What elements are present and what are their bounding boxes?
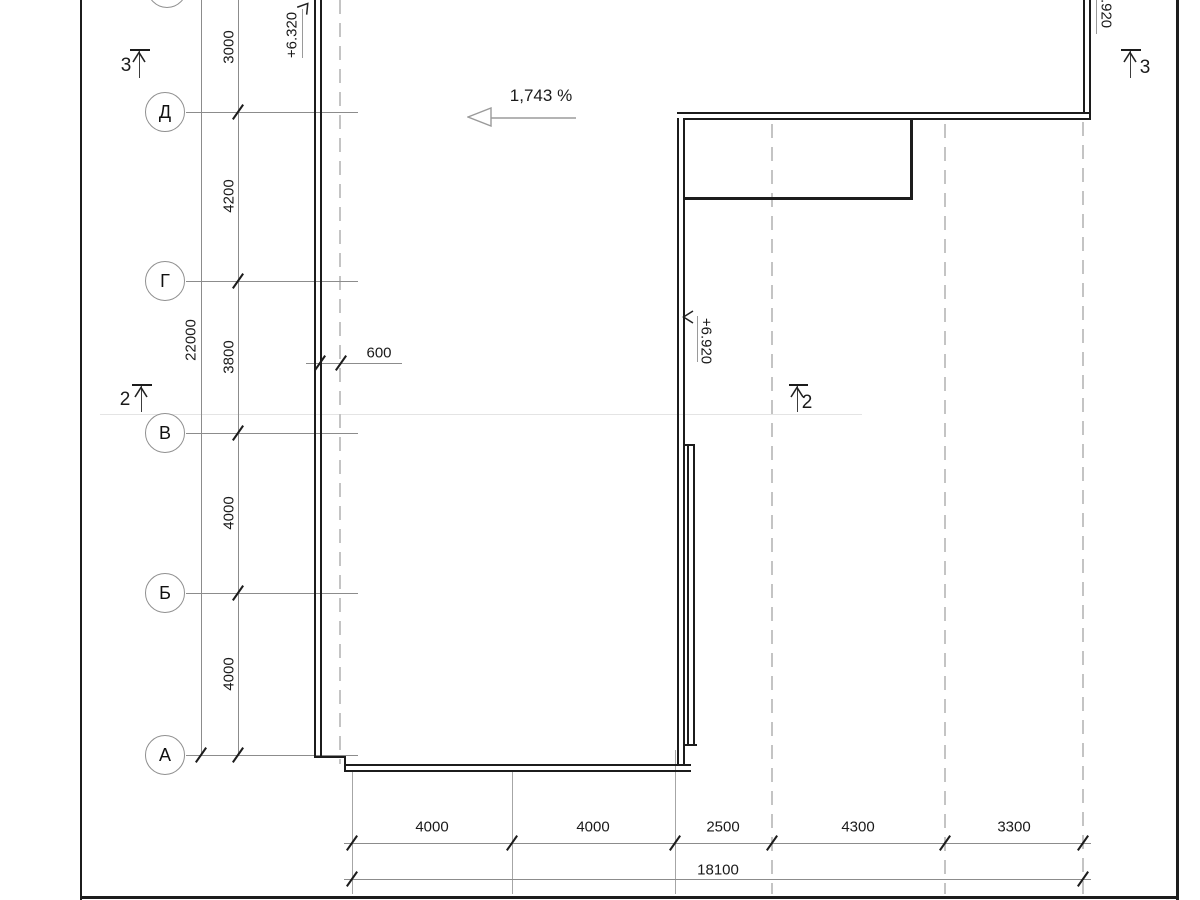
building-wall-upper-right-inner <box>1089 0 1091 120</box>
dim-text-4300: 4300 <box>841 819 874 836</box>
axis-circle-g: Г <box>145 261 185 301</box>
axis-label: Д <box>159 102 171 123</box>
slope-arrowhead-icon <box>467 107 493 127</box>
building-wall-upper-right-outer <box>1083 0 1085 114</box>
dim-text-3300: 3300 <box>997 819 1030 836</box>
roof-strip-top <box>683 444 695 446</box>
frame-bottom-border <box>80 896 1179 899</box>
dim-text-4000: 4000 <box>576 819 609 836</box>
section-label-2: 2 <box>120 389 131 411</box>
section-arrowhead-icon <box>131 51 147 63</box>
building-bottom-step-edge <box>314 756 346 758</box>
roof-strip-right <box>693 444 695 744</box>
dim-text-4000: 4000 <box>415 819 448 836</box>
dim-line-left-total <box>201 0 202 756</box>
axis-circle-top-cut <box>147 0 187 8</box>
axis-line-v <box>186 433 358 434</box>
axis-label: Г <box>160 271 170 292</box>
roof-strip-left <box>687 444 689 744</box>
axis-circle-d: Д <box>145 92 185 132</box>
axis-line-d <box>186 112 358 113</box>
section-label-3: 3 <box>121 55 132 77</box>
section-arrowhead-icon <box>1122 51 1138 63</box>
axis-label: Б <box>159 583 171 604</box>
building-wall-left-inner <box>320 0 322 758</box>
frame-right-border <box>1176 0 1179 900</box>
building-wall-right-inner <box>683 118 685 766</box>
dim-text-22000: 22000 <box>183 319 200 361</box>
dashed-grid-line <box>339 0 341 764</box>
dashed-grid-line <box>944 124 946 894</box>
axis-circle-v: В <box>145 413 185 453</box>
building-bottom-step <box>344 756 346 770</box>
dim-text-2500: 2500 <box>706 819 739 836</box>
axis-circle-a: А <box>145 735 185 775</box>
section-label-3: 3 <box>1140 57 1151 79</box>
dashed-grid-line <box>1082 122 1084 894</box>
dim-text-3800: 3800 <box>221 340 238 373</box>
elevation-label: +6.920 <box>698 318 715 364</box>
dim-text-18100: 18100 <box>697 862 739 879</box>
elevation-leader <box>302 9 303 58</box>
dim-text-4200: 4200 <box>221 179 238 212</box>
elevation-arrowhead-icon <box>682 309 694 325</box>
dashed-grid-line <box>771 124 773 894</box>
extension-line <box>512 772 513 894</box>
axis-label: В <box>159 423 171 444</box>
dim-text-3000: 3000 <box>221 30 238 63</box>
dim-line-bottom-segments <box>344 843 1091 844</box>
dim-line-bottom-total <box>344 879 1091 880</box>
frame-left-border <box>80 0 82 900</box>
section-label-2: 2 <box>802 392 813 414</box>
axis-label: А <box>159 745 171 766</box>
building-wall-right-outer <box>677 118 679 766</box>
dim-text-600: 600 <box>366 345 391 362</box>
building-bottom-outer <box>344 764 691 766</box>
slope-label: 1,743 % <box>510 86 572 106</box>
roof-edge-top-inner <box>683 118 1090 120</box>
dim-text-4000: 4000 <box>221 496 238 529</box>
axis-line-b <box>186 593 358 594</box>
parapet-rect-right <box>910 118 913 200</box>
axis-line-g <box>186 281 358 282</box>
parapet-rect-bottom <box>683 197 913 200</box>
elevation-label: +6.920 <box>1098 0 1115 28</box>
axis-circle-b: Б <box>145 573 185 613</box>
building-bottom-inner <box>344 770 691 772</box>
slope-arrow-line <box>491 117 576 119</box>
building-wall-left-outer <box>314 0 316 758</box>
roof-edge-top-outer <box>677 112 1090 114</box>
elevation-label: +6.320 <box>284 12 301 58</box>
roof-plan-drawing: Д Г В Б А 3000 4200 3800 4000 4000 22000… <box>0 0 1200 900</box>
roof-strip-bottom <box>683 744 697 746</box>
dim-text-4000: 4000 <box>221 657 238 690</box>
section-arrowhead-icon <box>133 386 149 398</box>
section-2-cut-line <box>100 414 862 415</box>
